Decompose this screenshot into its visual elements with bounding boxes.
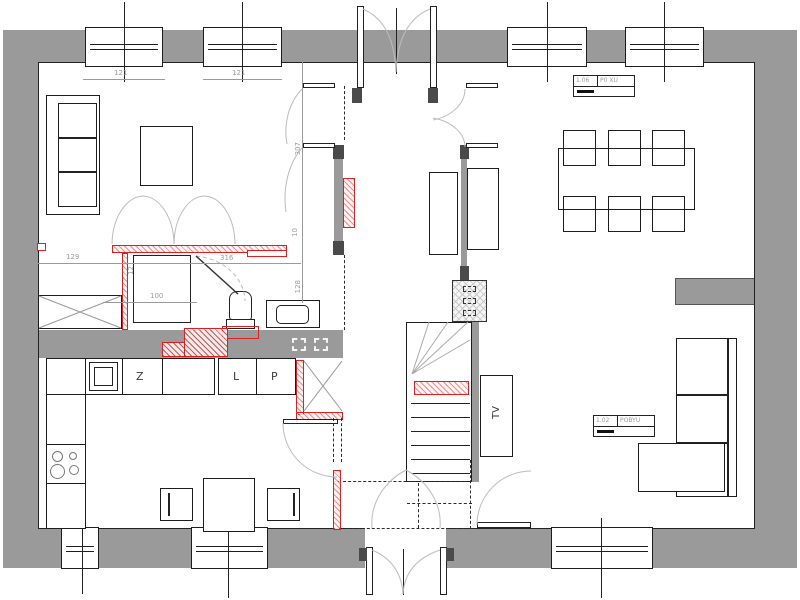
- dim-128: 128: [295, 280, 302, 293]
- dim-129: 129: [66, 254, 79, 261]
- dim-121-1: 121: [114, 70, 127, 77]
- entrance-swing-arc: [363, 9, 430, 72]
- swing-arcs-layer: [0, 0, 800, 600]
- dim-10: 10: [292, 228, 299, 237]
- dining-door-arc: [433, 89, 465, 147]
- dim-316: 316: [220, 255, 233, 262]
- dim-12: 12: [128, 266, 135, 275]
- dim-100: 100: [150, 293, 163, 300]
- stair-winder-lines: [412, 322, 470, 374]
- wardrobe-x: [39, 296, 121, 328]
- floor-plan-canvas: Z L P 1.06P0 XU: [0, 0, 800, 600]
- dim-121-2: 121: [232, 70, 245, 77]
- wardrobe-front-arc: [112, 196, 235, 244]
- dim-307: 307: [295, 142, 302, 155]
- dim-line-vertical: [302, 62, 303, 303]
- terrace-swing-arc-in: [372, 470, 440, 528]
- living-door-arc: [477, 471, 531, 525]
- dim-line: [203, 79, 282, 80]
- dim-123: 123: [295, 48, 302, 61]
- dim-line: [103, 302, 197, 303]
- pantry-door-arc: [283, 423, 337, 477]
- pantry-x: [304, 361, 342, 411]
- terrace-swing-arc-out: [372, 550, 440, 594]
- dim-line: [83, 79, 165, 80]
- dim-line: [38, 263, 301, 264]
